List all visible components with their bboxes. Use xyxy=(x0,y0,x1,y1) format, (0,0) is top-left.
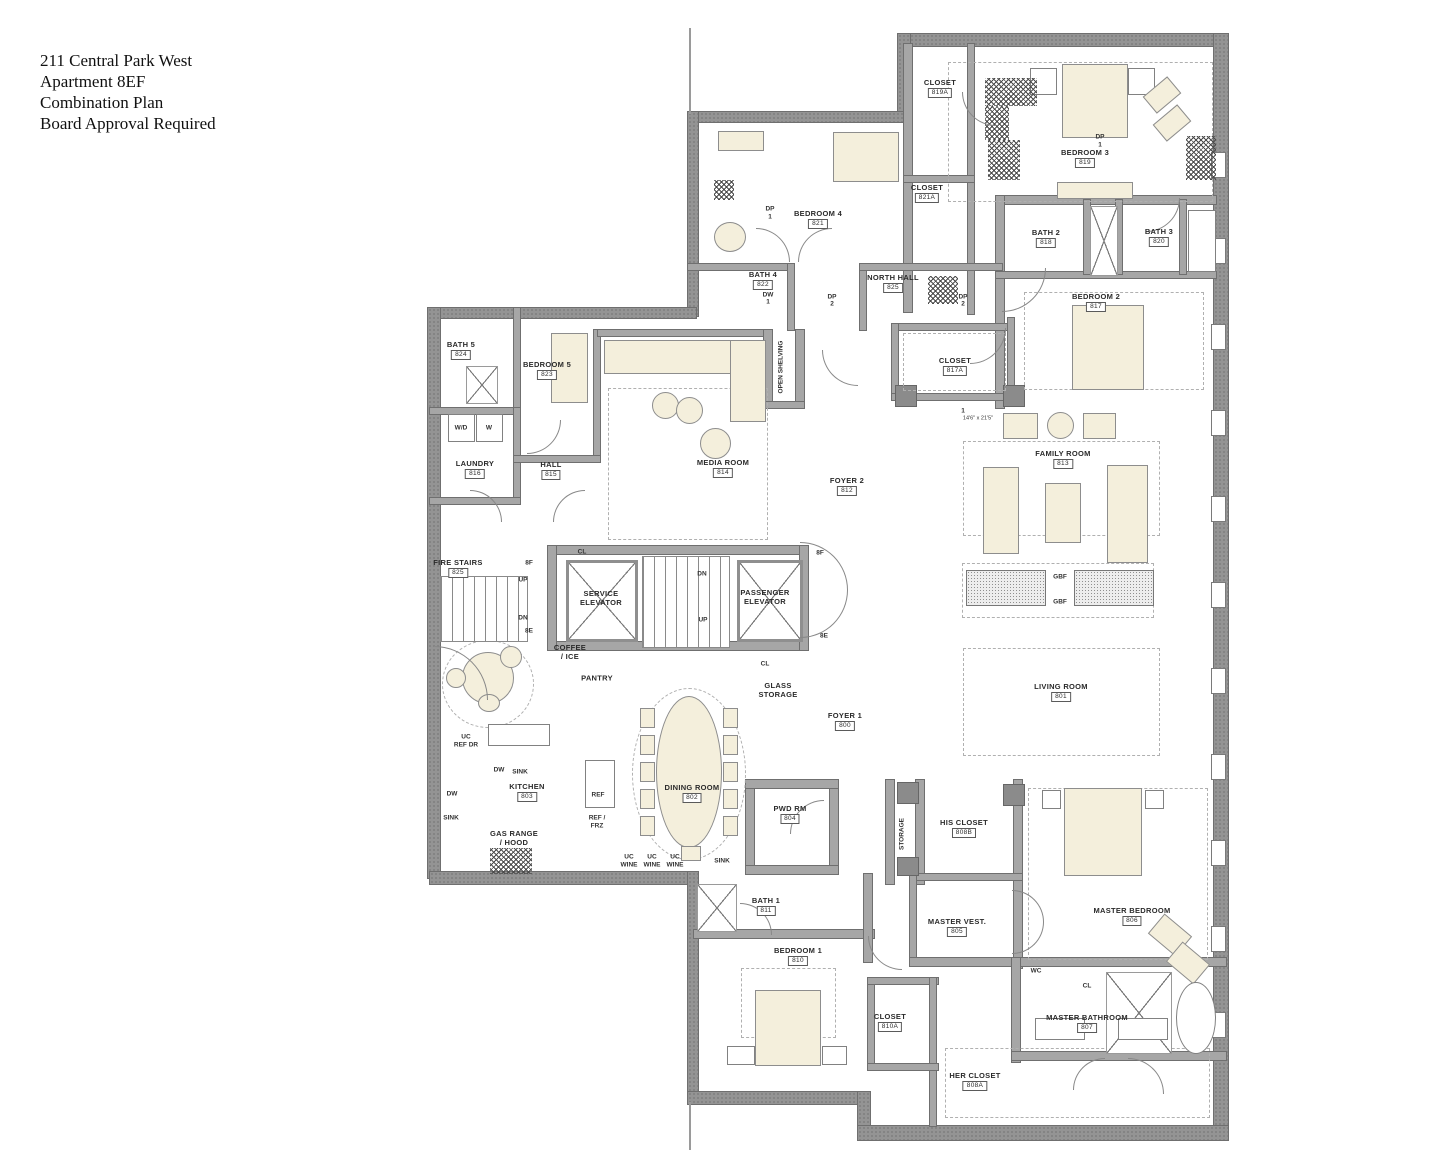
room-number-badge: 814 xyxy=(713,468,733,478)
room-number-badge: 811 xyxy=(756,906,775,916)
stair-run xyxy=(642,556,730,648)
shower xyxy=(466,366,498,404)
room-label-bath-2: BATH 2818 xyxy=(1032,228,1060,248)
plan-wall xyxy=(868,978,938,984)
annotation-1: 1 xyxy=(961,407,965,415)
annotation-uc-wine: UCWINE xyxy=(621,854,638,869)
annotation-cl: CL xyxy=(1083,982,1092,990)
room-number-badge: 817 xyxy=(1086,302,1106,312)
furniture xyxy=(1057,182,1133,199)
room-label-hall: HALL815 xyxy=(540,460,561,480)
fixture xyxy=(1188,210,1216,272)
furniture xyxy=(1107,465,1148,563)
room-label-bedroom-4: BEDROOM 4821 xyxy=(794,209,842,229)
plan-wall xyxy=(688,264,794,270)
room-name: HER CLOSET xyxy=(949,1071,1000,1080)
annotation-uc-ref-dr: UCREF DR xyxy=(454,734,478,749)
room-number-badge: 810 xyxy=(788,956,808,966)
room-label-master-bedroom: MASTER BEDROOM806 xyxy=(1093,906,1170,926)
window-icon xyxy=(1211,410,1226,436)
plan-wall xyxy=(898,34,1228,46)
annotation-uc-wine: UCWINE xyxy=(667,854,684,869)
plan-wall xyxy=(430,872,696,884)
room-name: BEDROOM 5 xyxy=(523,360,571,369)
plan-wall xyxy=(860,264,866,330)
annotation-dp: DP xyxy=(1095,133,1104,141)
room-name: NORTH HALL xyxy=(867,273,919,282)
window-icon xyxy=(1211,582,1226,608)
plan-wall xyxy=(430,308,696,318)
room-number-badge: 823 xyxy=(537,370,557,380)
room-label-his-closet: HIS CLOSET808B xyxy=(940,818,988,838)
furniture xyxy=(723,762,738,782)
annotation-wc: WC xyxy=(1031,967,1042,975)
room-label-foyer-1: FOYER 1800 xyxy=(828,711,862,731)
room-number-badge: 808A xyxy=(963,1081,987,1091)
room-name: HALL xyxy=(540,460,561,469)
room-name: MASTER BEDROOM xyxy=(1093,906,1170,915)
annotation-14-6-x-21-5-: 14'6" x 21'5" xyxy=(963,415,993,423)
room-name: BEDROOM 2 xyxy=(1072,292,1120,301)
room-number-badge: 805 xyxy=(947,927,967,937)
furniture xyxy=(1062,64,1128,138)
room-number-badge: 819A xyxy=(928,88,952,98)
fixture xyxy=(1042,790,1061,809)
room-number-badge: 821A xyxy=(915,193,939,203)
room-label-master-vest-: MASTER VEST.805 xyxy=(928,917,986,937)
annotation-sink: SINK xyxy=(512,768,528,776)
room-label-bath-3: BATH 3820 xyxy=(1145,227,1173,247)
room-number-badge: 816 xyxy=(465,469,485,479)
plan-column xyxy=(1004,785,1024,805)
room-label-closet: CLOSET821A xyxy=(911,183,943,203)
door-swing-arc xyxy=(868,936,902,970)
plan-wall xyxy=(689,28,691,114)
plan-column xyxy=(898,783,918,803)
furniture xyxy=(640,816,655,836)
plan-column xyxy=(898,858,918,875)
furniture xyxy=(1072,305,1144,390)
room-name: PASSENGERELEVATOR xyxy=(740,588,789,606)
room-name: FIRE STAIRS xyxy=(433,558,482,567)
annotation-1: 1 xyxy=(766,298,770,306)
plan-wall xyxy=(746,866,838,874)
room-number-badge: 802 xyxy=(682,793,702,803)
plan-wall xyxy=(910,874,1022,880)
room-number-badge: 817A xyxy=(943,366,967,376)
window-icon xyxy=(1211,668,1226,694)
room-number-badge: 813 xyxy=(1053,459,1073,469)
window-icon xyxy=(1211,754,1226,780)
annotation-1: 1 xyxy=(768,213,772,221)
annotation-gbf: GBF xyxy=(1053,573,1067,581)
annotation-up: UP xyxy=(698,616,707,624)
plan-wall xyxy=(688,1092,868,1104)
furniture xyxy=(723,708,738,728)
room-name: GAS RANGE/ HOOD xyxy=(490,829,538,847)
annotation-2: 2 xyxy=(830,300,834,308)
room-label-closet: CLOSET819A xyxy=(924,78,956,98)
plan-wall xyxy=(910,874,916,966)
fixture xyxy=(727,1046,755,1065)
room-name: BATH 4 xyxy=(749,270,777,279)
furniture-round xyxy=(652,392,679,419)
annotation-up: UP xyxy=(518,576,527,584)
room-label-bath-1: BATH 1811 xyxy=(752,896,780,916)
room-name: CLOSET xyxy=(939,356,971,365)
room-label-closet: CLOSET810A xyxy=(874,1012,906,1032)
room-number-badge: 818 xyxy=(1036,238,1056,248)
plan-wall xyxy=(1180,200,1186,274)
room-number-badge: 815 xyxy=(541,470,561,480)
room-number-badge: 824 xyxy=(451,350,471,360)
annotation-dw: DW xyxy=(447,790,458,798)
dining-table xyxy=(656,696,722,848)
furniture xyxy=(755,990,821,1066)
annotation-storage: STORAGE xyxy=(898,818,906,850)
room-name: COFFEE/ ICE xyxy=(554,643,586,661)
annotation-dn: DN xyxy=(697,570,706,578)
room-number-badge: 804 xyxy=(780,814,800,824)
annotation-ref-frz: REF /FRZ xyxy=(589,815,606,830)
furniture-round xyxy=(714,222,746,252)
furniture xyxy=(640,789,655,809)
room-number-badge: 825 xyxy=(883,283,903,293)
room-label-bath-5: BATH 5824 xyxy=(447,340,475,360)
stair-run xyxy=(440,576,528,642)
room-label-bedroom-2: BEDROOM 2817 xyxy=(1072,292,1120,312)
room-label-passenger-elevator: PASSENGERELEVATOR xyxy=(740,588,789,606)
furniture xyxy=(723,735,738,755)
annotation-ref: REF xyxy=(592,791,605,799)
window-icon xyxy=(1211,926,1226,952)
shower xyxy=(1090,206,1118,276)
plan-wall xyxy=(930,978,936,1126)
plan-column xyxy=(1004,386,1024,406)
room-name: BEDROOM 4 xyxy=(794,209,842,218)
room-number-badge: 822 xyxy=(753,280,773,290)
room-number-badge: 806 xyxy=(1122,916,1142,926)
furniture xyxy=(983,467,1019,554)
rug-hatch xyxy=(988,140,1020,180)
bathtub xyxy=(1176,982,1216,1054)
door-swing-arc xyxy=(800,542,848,638)
rug-hatch xyxy=(714,180,734,200)
window-icon xyxy=(1211,840,1226,866)
furniture-round xyxy=(700,428,731,459)
room-name: MEDIA ROOM xyxy=(697,458,749,467)
room-label-north-hall: NORTH HALL825 xyxy=(867,273,919,293)
door-swing-arc xyxy=(756,228,790,262)
annotation-cl: CL xyxy=(761,660,770,668)
room-label-master-bathroom: MASTER BATHROOM807 xyxy=(1046,1013,1128,1033)
fireplace xyxy=(1074,570,1154,606)
plan-wall xyxy=(514,308,520,412)
room-name: CLOSET xyxy=(911,183,943,192)
room-label-coffee-ice: COFFEE/ ICE xyxy=(554,643,586,661)
room-number-badge: 807 xyxy=(1077,1023,1097,1033)
plan-wall xyxy=(428,308,440,878)
plan-wall xyxy=(858,1126,1228,1140)
rug-hatch xyxy=(1186,136,1216,180)
annotation-uc-wine: UCWINE xyxy=(644,854,661,869)
room-number-badge: 819 xyxy=(1075,158,1095,168)
plan-wall xyxy=(548,546,556,650)
room-number-badge: 821 xyxy=(808,219,828,229)
furniture xyxy=(833,132,899,182)
door-swing-arc xyxy=(527,420,561,454)
room-name: SERVICEELEVATOR xyxy=(580,589,622,607)
room-name: FOYER 2 xyxy=(830,476,864,485)
dashed-zone xyxy=(963,648,1160,756)
furniture xyxy=(730,340,766,422)
room-number-badge: 812 xyxy=(837,486,857,496)
plan-wall xyxy=(689,1102,691,1150)
room-label-dining-room: DINING ROOM802 xyxy=(665,783,720,803)
room-number-badge: 808B xyxy=(952,828,976,838)
annotation-w: W xyxy=(486,424,492,432)
room-label-pantry: PANTRY xyxy=(581,674,613,683)
furniture xyxy=(723,789,738,809)
room-name: BEDROOM 3 xyxy=(1061,148,1109,157)
plan-wall xyxy=(514,408,520,502)
room-label-glass-storage: GLASSSTORAGE xyxy=(758,681,797,699)
room-name: MASTER VEST. xyxy=(928,917,986,926)
furniture xyxy=(718,131,764,151)
plan-wall xyxy=(594,330,600,460)
fixture xyxy=(822,1046,847,1065)
room-name: FOYER 1 xyxy=(828,711,862,720)
room-name: MASTER BATHROOM xyxy=(1046,1013,1128,1022)
furniture xyxy=(1045,483,1081,543)
annotation-8f: 8F xyxy=(816,549,824,557)
room-name: BATH 5 xyxy=(447,340,475,349)
room-name: PANTRY xyxy=(581,674,613,683)
fixture xyxy=(585,760,615,808)
room-name: CLOSET xyxy=(924,78,956,87)
room-name: BATH 1 xyxy=(752,896,780,905)
fixture xyxy=(1145,790,1164,809)
furniture-round xyxy=(676,397,703,424)
plan-wall xyxy=(868,1064,938,1070)
fireplace xyxy=(966,570,1046,606)
annotation-sink: SINK xyxy=(443,814,459,822)
furniture xyxy=(681,846,701,861)
room-name: PWD RM xyxy=(773,804,806,813)
room-name: LAUNDRY xyxy=(456,459,495,468)
annotation-dw: DW xyxy=(494,766,505,774)
plan-wall xyxy=(746,780,754,874)
room-name: CLOSET xyxy=(874,1012,906,1021)
annotation-gbf: GBF xyxy=(1053,598,1067,606)
annotation-sink: SINK xyxy=(714,857,730,865)
plan-wall xyxy=(796,330,804,408)
plan-wall xyxy=(548,546,808,554)
room-label-her-closet: HER CLOSET808A xyxy=(949,1071,1000,1091)
room-label-gas-range-hood: GAS RANGE/ HOOD xyxy=(490,829,538,847)
rug-hatch xyxy=(928,276,958,304)
room-label-foyer-2: FOYER 2812 xyxy=(830,476,864,496)
annotation-1: 1 xyxy=(1098,141,1102,149)
annotation-dn: DN xyxy=(518,614,527,622)
room-name: KITCHEN xyxy=(509,782,544,791)
room-label-family-room: FAMILY ROOM813 xyxy=(1035,449,1090,469)
room-name: BATH 3 xyxy=(1145,227,1173,236)
room-label-bedroom-1: BEDROOM 1810 xyxy=(774,946,822,966)
room-name: DINING ROOM xyxy=(665,783,720,792)
plan-wall xyxy=(688,112,698,316)
room-number-badge: 800 xyxy=(835,721,855,731)
door-swing-arc xyxy=(822,350,858,386)
annotation-8e: 8E xyxy=(820,632,828,640)
furniture-round xyxy=(500,646,522,668)
rug-hatch xyxy=(490,848,532,874)
annotation-8f: 8F xyxy=(525,559,533,567)
room-name: BEDROOM 1 xyxy=(774,946,822,955)
room-label-bedroom-5: BEDROOM 5823 xyxy=(523,360,571,380)
door-swing-arc xyxy=(553,490,585,522)
plan-wall xyxy=(764,402,804,408)
room-label-kitchen: KITCHEN803 xyxy=(509,782,544,802)
room-label-bedroom-3: BEDROOM 3819 xyxy=(1061,148,1109,168)
room-label-fire-stairs: FIRE STAIRS825 xyxy=(433,558,482,578)
room-number-badge: 803 xyxy=(517,792,537,802)
annotation-8e: 8E xyxy=(525,627,533,635)
room-label-living-room: LIVING ROOM801 xyxy=(1034,682,1088,702)
annotation-open-shelving: OPEN SHELVING xyxy=(777,341,785,394)
room-number-badge: 820 xyxy=(1149,237,1169,247)
plan-wall xyxy=(746,780,838,788)
annotation-w-d: W/D xyxy=(455,424,468,432)
plan-wall xyxy=(598,330,770,336)
furniture xyxy=(1083,413,1116,439)
room-label-bath-4: BATH 4822 xyxy=(749,270,777,290)
window-icon xyxy=(1211,496,1226,522)
annotation-2: 2 xyxy=(961,300,965,308)
furniture xyxy=(723,816,738,836)
annotation-cl: CL xyxy=(578,548,587,556)
room-name: LIVING ROOM xyxy=(1034,682,1088,691)
plan-wall xyxy=(830,780,838,874)
room-label-laundry: LAUNDRY816 xyxy=(456,459,495,479)
shower xyxy=(697,884,737,932)
furniture xyxy=(640,735,655,755)
plan-wall xyxy=(688,112,908,122)
annotation-dp: DP xyxy=(765,205,774,213)
room-name: BATH 2 xyxy=(1032,228,1060,237)
plan-wall xyxy=(860,264,1002,270)
room-name: GLASSSTORAGE xyxy=(758,681,797,699)
fixture xyxy=(488,724,550,746)
floor-plan: CLOSET819ABEDROOM 3819CLOSET821ABEDROOM … xyxy=(0,0,1454,1152)
furniture-round xyxy=(1047,412,1074,439)
room-number-badge: 801 xyxy=(1051,692,1071,702)
plan-wall xyxy=(886,780,894,884)
room-label-service-elevator: SERVICEELEVATOR xyxy=(580,589,622,607)
door-swing-arc xyxy=(470,490,502,522)
window-icon xyxy=(1211,324,1226,350)
room-label-closet: CLOSET817A xyxy=(939,356,971,376)
room-number-badge: 825 xyxy=(448,568,468,578)
room-name: HIS CLOSET xyxy=(940,818,988,827)
room-number-badge: 810A xyxy=(878,1022,902,1032)
furniture xyxy=(1003,413,1038,439)
room-name: FAMILY ROOM xyxy=(1035,449,1090,458)
room-label-media-room: MEDIA ROOM814 xyxy=(697,458,749,478)
furniture xyxy=(640,708,655,728)
plan-wall xyxy=(430,408,520,414)
furniture xyxy=(1064,788,1142,876)
plan-wall xyxy=(788,264,794,330)
furniture xyxy=(640,762,655,782)
plan-wall xyxy=(1012,958,1020,1062)
door-swing-arc xyxy=(798,228,832,262)
room-label-pwd-rm: PWD RM804 xyxy=(773,804,806,824)
